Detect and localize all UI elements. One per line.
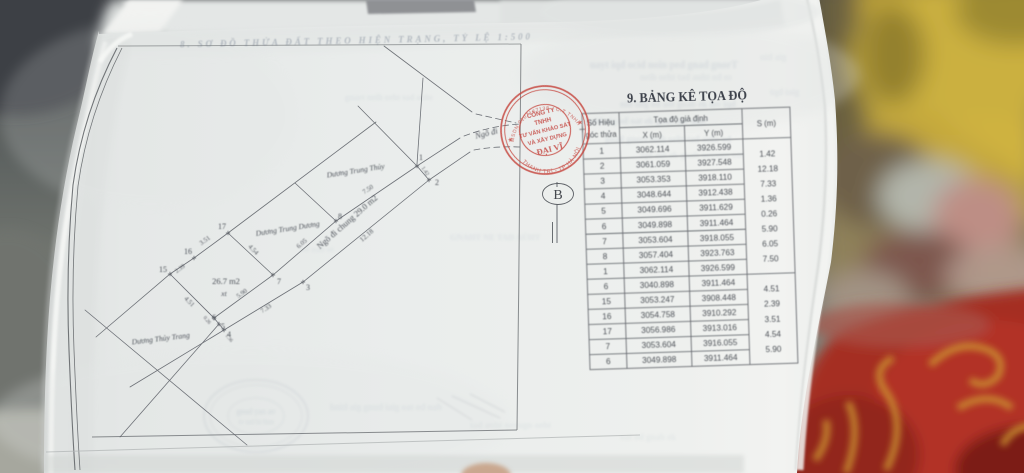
svg-text:xt: xt — [220, 289, 227, 298]
svg-text:6.05: 6.05 — [762, 239, 779, 249]
svg-text:X (m): X (m) — [642, 130, 662, 140]
svg-text:tqd iaig: tqd iaig — [770, 87, 800, 97]
svg-text:7: 7 — [602, 237, 607, 246]
svg-text:oat od gnab ek: oat od gnab ek — [620, 432, 676, 442]
svg-text:5: 5 — [601, 207, 606, 216]
svg-text:3049.898: 3049.898 — [642, 355, 677, 365]
svg-text:4: 4 — [227, 330, 231, 339]
svg-text:17: 17 — [603, 327, 613, 336]
svg-text:3053.353: 3053.353 — [636, 175, 671, 185]
svg-text:9. BẢNG KÊ TỌA ĐỘ: 9. BẢNG KÊ TỌA ĐỘ — [627, 87, 747, 105]
svg-text:3923.763: 3923.763 — [700, 248, 735, 258]
svg-text:0.26: 0.26 — [761, 209, 778, 219]
svg-text:3911.464: 3911.464 — [700, 218, 734, 228]
svg-text:1: 1 — [419, 153, 423, 162]
svg-text:6: 6 — [606, 357, 611, 366]
svg-text:B: B — [553, 188, 562, 203]
svg-text:iv iad ht hnn: iv iad ht hnn — [238, 418, 274, 426]
svg-text:3927.548: 3927.548 — [697, 158, 732, 168]
svg-text:tad auht neyugn oeht: tad auht neyugn oeht — [470, 420, 551, 430]
svg-text:Y (m): Y (m) — [704, 128, 724, 138]
svg-text:3053.604: 3053.604 — [642, 340, 677, 350]
svg-text:8: 8 — [603, 252, 608, 261]
svg-text:3: 3 — [306, 283, 310, 292]
svg-text:3910.292: 3910.292 — [702, 308, 737, 318]
svg-text:3926.599: 3926.599 — [697, 143, 732, 153]
svg-text:16: 16 — [602, 312, 612, 321]
svg-text:12.18: 12.18 — [757, 164, 778, 174]
svg-text:GNAHT NE TAD AỦHT: GNAHT NE TAD AỦHT — [450, 232, 541, 242]
svg-text:3.51: 3.51 — [764, 314, 781, 324]
svg-text:5: 5 — [221, 322, 225, 331]
svg-text:3053.247: 3053.247 — [640, 295, 675, 305]
svg-text:16: 16 — [184, 247, 192, 256]
svg-text:2.39: 2.39 — [764, 299, 781, 309]
svg-text:7.33: 7.33 — [760, 179, 777, 189]
svg-text:3040.898: 3040.898 — [640, 280, 675, 290]
svg-text:3908.448: 3908.448 — [702, 293, 737, 303]
svg-text:3057.404: 3057.404 — [639, 250, 674, 260]
svg-text:1: 1 — [599, 147, 604, 156]
svg-text:2: 2 — [600, 162, 605, 171]
svg-text:Tọa độ giả định: Tọa độ giả định — [653, 114, 708, 125]
svg-text:4: 4 — [601, 192, 606, 201]
svg-text:6: 6 — [602, 222, 607, 231]
svg-text:3911.464: 3911.464 — [701, 278, 735, 288]
svg-text:26.7 m2: 26.7 m2 — [212, 276, 240, 286]
svg-text:3918.055: 3918.055 — [700, 233, 735, 243]
svg-text:3062.114: 3062.114 — [636, 145, 670, 155]
svg-text:6: 6 — [604, 282, 609, 291]
svg-text:3054.758: 3054.758 — [641, 310, 676, 320]
svg-text:6: 6 — [212, 313, 216, 322]
svg-text:3911.629: 3911.629 — [699, 203, 733, 213]
svg-text:17: 17 — [218, 222, 226, 231]
svg-text:2: 2 — [435, 178, 439, 187]
svg-text:3056.986: 3056.986 — [641, 325, 676, 335]
svg-text:5.90: 5.90 — [765, 345, 782, 355]
svg-text:uayt iqd ocid noin ped gnad gn: uayt iqd ocid noin ped gnad gnorT — [590, 60, 738, 71]
svg-text:15: 15 — [159, 265, 167, 274]
svg-text:3926.599: 3926.599 — [701, 263, 736, 273]
svg-text:góc thửa: góc thửa — [585, 130, 617, 140]
svg-text:3049.696: 3049.696 — [637, 205, 672, 215]
svg-text:neih oeht tad auht od os: neih oeht tad auht od os — [640, 72, 732, 82]
svg-text:gnud yax av: gnud yax av — [236, 407, 275, 416]
svg-text:1.36: 1.36 — [761, 194, 778, 204]
svg-text:5.90: 5.90 — [762, 224, 779, 234]
svg-text:3911.464: 3911.464 — [704, 353, 738, 363]
svg-text:3913.016: 3913.016 — [703, 323, 738, 333]
svg-text:3916.055: 3916.055 — [703, 338, 738, 348]
svg-text:4.51: 4.51 — [763, 284, 780, 294]
svg-text:3053.604: 3053.604 — [638, 235, 673, 245]
svg-text:3918.110: 3918.110 — [698, 173, 732, 183]
svg-text:4.54: 4.54 — [765, 330, 782, 340]
svg-text:8: 8 — [338, 212, 342, 221]
svg-text:3062.114: 3062.114 — [640, 265, 674, 275]
svg-text:7: 7 — [605, 342, 610, 351]
svg-text:gnart neih oeht tad auht: gnart neih oeht tad auht — [345, 92, 433, 102]
svg-text:nid aig: nid aig — [760, 52, 787, 62]
svg-text:7: 7 — [277, 277, 281, 286]
svg-text:3048.644: 3048.644 — [637, 190, 672, 200]
svg-text:3912.438: 3912.438 — [698, 188, 733, 198]
svg-text:hnid aig gnud iaig oat od nab: hnid aig gnud iaig oat od nab — [330, 402, 442, 412]
svg-text:3061.059: 3061.059 — [636, 160, 671, 170]
svg-text:S (m): S (m) — [757, 119, 777, 129]
svg-text:Số Hiệu: Số Hiệu — [587, 118, 615, 128]
svg-text:15: 15 — [602, 297, 612, 306]
svg-text:7.50: 7.50 — [763, 254, 780, 264]
svg-text:3049.898: 3049.898 — [638, 220, 673, 230]
svg-text:1.42: 1.42 — [759, 149, 776, 159]
svg-text:1: 1 — [603, 267, 608, 276]
svg-text:3: 3 — [600, 177, 605, 186]
